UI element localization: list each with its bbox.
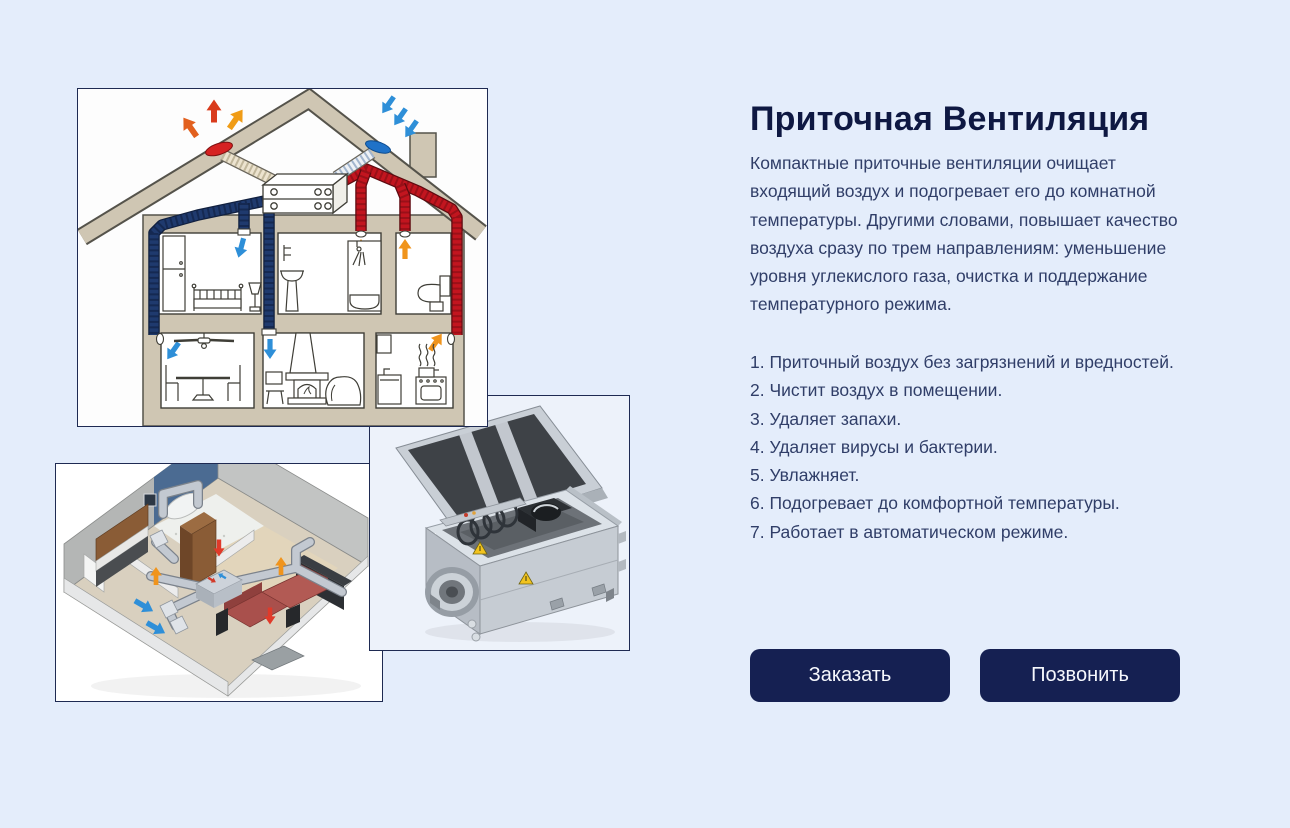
order-button[interactable]: Заказать (750, 649, 950, 702)
action-buttons: Заказать Позвонить (750, 649, 1180, 702)
description-line: воздуха сразу по трем направлениям: умен… (750, 234, 1195, 262)
apartment-ducting-3d-image (55, 463, 383, 702)
description-line: температуры. Другими словами, повышает к… (750, 206, 1195, 234)
feature-item: 6. Подогревает до комфортной температуры… (750, 489, 1195, 517)
features-list: 1. Приточный воздух без загрязнений и вр… (750, 348, 1195, 546)
house-ventilation-diagram-image (77, 88, 488, 427)
description-line: уровня углекислого газа, очистка и подде… (750, 262, 1195, 290)
ventilation-unit-photo-image (369, 395, 630, 651)
feature-item: 1. Приточный воздух без загрязнений и вр… (750, 348, 1195, 376)
call-button[interactable]: Позвонить (980, 649, 1180, 702)
feature-item: 5. Увлажняет. (750, 461, 1195, 489)
feature-item: 4. Удаляет вирусы и бактерии. (750, 433, 1195, 461)
house-diagram-svg (78, 89, 487, 426)
ventilation-unit-svg (370, 396, 629, 650)
feature-item: 2. Чистит воздух в помещении. (750, 376, 1195, 404)
feature-item: 7. Работает в автоматическом режиме. (750, 518, 1195, 546)
landing-section: Приточная Вентиляция Компактные приточны… (0, 0, 1290, 828)
feature-item: 3. Удаляет запахи. (750, 405, 1195, 433)
description-line: Компактные приточные вентиляции очищает (750, 149, 1195, 177)
apartment-3d-svg (56, 464, 382, 701)
page-title: Приточная Вентиляция (750, 100, 1195, 139)
description: Компактные приточные вентиляции очищает … (750, 149, 1195, 319)
description-line: температурного режима. (750, 290, 1195, 318)
description-line: входящий воздух и подогревает его до ком… (750, 177, 1195, 205)
